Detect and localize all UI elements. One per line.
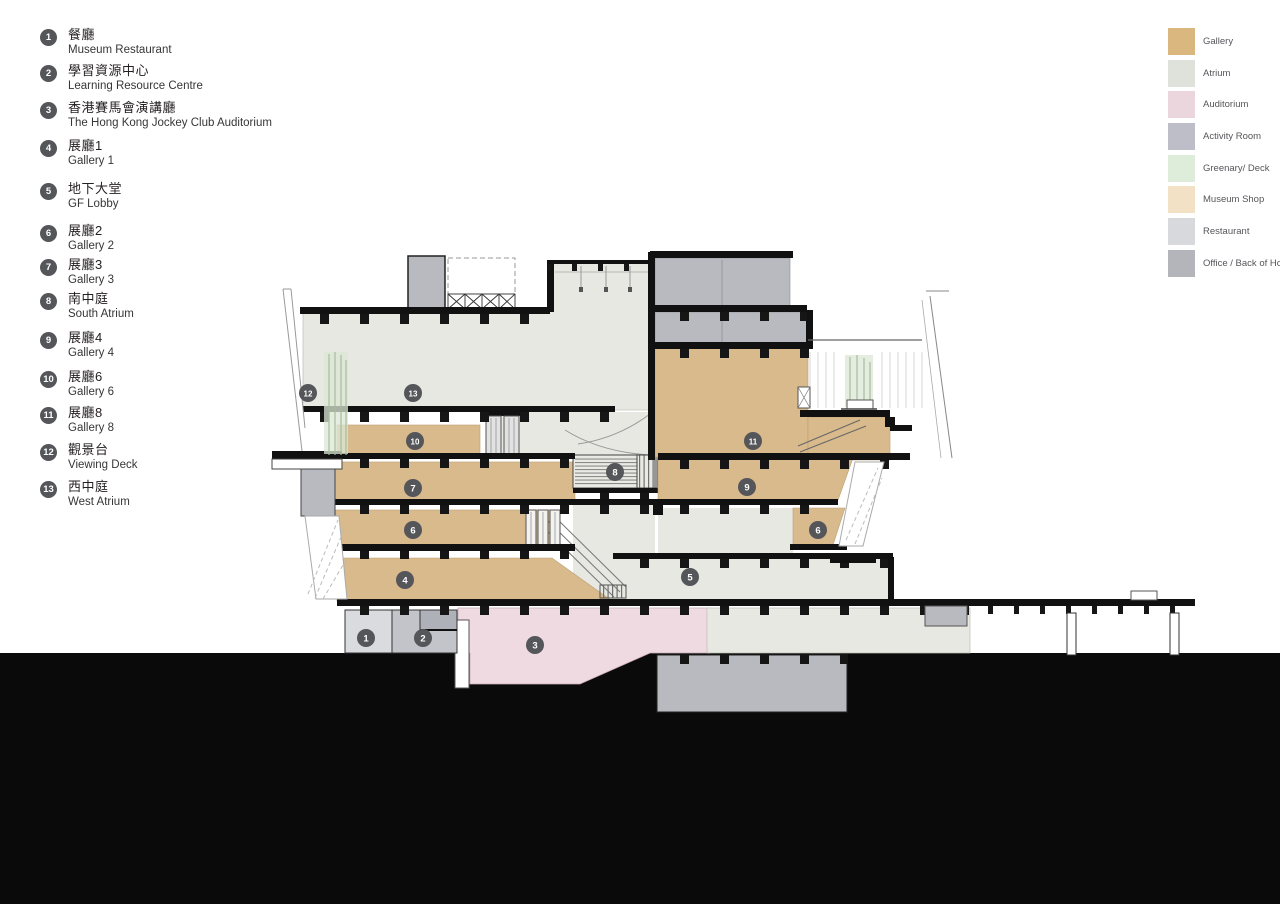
- svg-text:1: 1: [363, 634, 369, 645]
- bamboo-plants-left: [324, 352, 348, 455]
- section-marker: 5: [681, 568, 699, 586]
- canopy-column: [1067, 613, 1076, 655]
- svg-text:13: 13: [409, 390, 418, 399]
- museum-section-diagram: 1餐廳Museum Restaurant 2學習資源中心Learning Res…: [0, 0, 1280, 904]
- section-marker: 3: [526, 636, 544, 654]
- section-marker: 2: [414, 629, 432, 647]
- svg-text:6: 6: [815, 526, 820, 537]
- section-marker: 1: [357, 629, 375, 647]
- rooftop-plant-room: [408, 256, 445, 308]
- rooftop-truss: [448, 294, 515, 309]
- svg-text:7: 7: [410, 484, 415, 495]
- building-section-drawing: 1 2 3 4 5 6 6 7 8 9 10 11 12 13: [0, 0, 1280, 904]
- section-marker: 8: [606, 463, 624, 481]
- section-marker: 9: [738, 478, 756, 496]
- svg-text:12: 12: [304, 390, 313, 399]
- svg-text:11: 11: [749, 438, 758, 447]
- ground-mass: [0, 653, 1280, 904]
- section-marker: 11: [744, 432, 762, 450]
- svg-text:10: 10: [411, 438, 420, 447]
- section-marker: 6: [404, 521, 422, 539]
- basement-office-block: [657, 655, 847, 712]
- gallery-1-room: [337, 558, 612, 601]
- svg-text:4: 4: [402, 576, 408, 587]
- svg-text:8: 8: [612, 468, 617, 479]
- bamboo-plants-right: [841, 355, 877, 409]
- section-marker: 13: [404, 384, 422, 402]
- section-marker: 10: [406, 432, 424, 450]
- section-marker: 4: [396, 571, 414, 589]
- gallery-3-room: [333, 462, 575, 503]
- gallery-2-room: [330, 510, 553, 548]
- svg-text:6: 6: [410, 526, 415, 537]
- section-marker: 12: [299, 384, 317, 402]
- section-marker: 7: [404, 479, 422, 497]
- svg-text:3: 3: [532, 641, 537, 652]
- sloped-facade-left: [305, 516, 347, 599]
- svg-text:2: 2: [420, 634, 425, 645]
- section-marker: 6: [809, 521, 827, 539]
- svg-text:9: 9: [744, 483, 749, 494]
- svg-text:5: 5: [687, 573, 693, 584]
- canopy-column: [1170, 613, 1179, 655]
- rooftop-dashed-volume: [448, 258, 515, 294]
